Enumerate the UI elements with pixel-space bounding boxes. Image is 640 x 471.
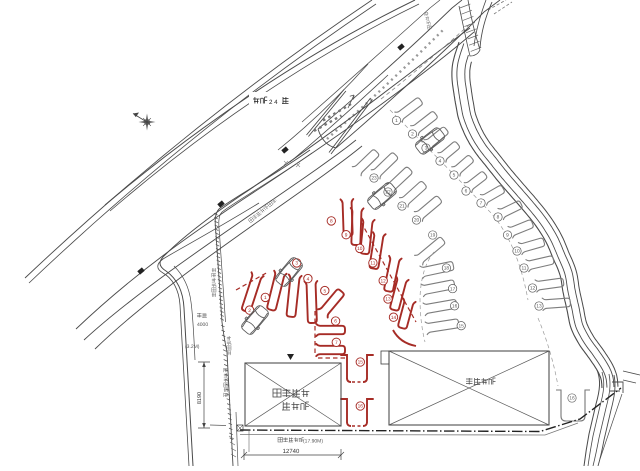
svg-text:19: 19 [430,233,436,239]
svg-text:23: 23 [371,176,377,182]
svg-text:21: 21 [399,204,405,210]
svg-text:8: 8 [497,215,500,221]
svg-text:6: 6 [334,319,337,325]
svg-text:10: 10 [357,246,363,252]
svg-text:3: 3 [295,261,298,267]
svg-text:1: 1 [395,118,398,124]
svg-text:17: 17 [450,286,456,292]
svg-text:10: 10 [514,249,520,255]
svg-text:4: 4 [307,276,310,282]
svg-text:9: 9 [345,232,348,238]
svg-text:5: 5 [453,173,456,179]
svg-text:(3.2M): (3.2M) [185,344,200,350]
svg-text:7: 7 [480,201,483,207]
svg-text:15: 15 [358,360,364,366]
svg-text:13: 13 [385,297,391,303]
svg-text:7: 7 [335,340,338,346]
svg-text:18: 18 [444,266,450,272]
svg-text:12740: 12740 [283,448,300,455]
svg-text:4: 4 [439,159,442,165]
svg-text:14: 14 [391,315,397,321]
svg-text:2: 2 [411,132,414,138]
svg-text:11: 11 [522,266,527,272]
svg-text:13: 13 [536,304,542,310]
svg-text:4000: 4000 [197,322,208,328]
svg-text:2: 2 [248,308,251,314]
svg-text:12: 12 [530,286,536,292]
svg-text:6: 6 [465,189,468,195]
svg-text:1: 1 [264,295,267,301]
svg-text:12: 12 [381,278,387,284]
svg-text:(17.90M): (17.90M) [303,439,323,445]
svg-text:15: 15 [459,323,465,329]
svg-text:2 4: 2 4 [269,99,278,106]
svg-text:8190: 8190 [197,392,203,404]
svg-text:16: 16 [452,304,458,310]
svg-text:20: 20 [414,218,420,224]
svg-text:16: 16 [569,396,575,402]
svg-text:8: 8 [330,219,333,225]
svg-text:9: 9 [506,233,509,239]
svg-text:16: 16 [358,404,364,410]
svg-text:5: 5 [323,288,326,294]
svg-text:11: 11 [370,261,375,267]
